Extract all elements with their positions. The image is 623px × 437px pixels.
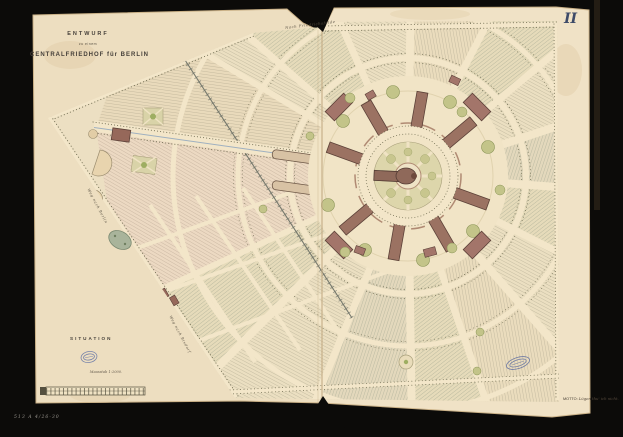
scale-caption: Maasstab 1:2000. bbox=[76, 371, 136, 375]
motto-line: MOTTO: Lügen thu' ich nicht. bbox=[563, 397, 619, 401]
title-line-2: zu einem bbox=[38, 43, 138, 47]
title-line-1: ENTWURF bbox=[38, 31, 138, 37]
plate-number: II bbox=[564, 12, 577, 27]
archive-mark: 513 A 4/26-30 bbox=[14, 415, 60, 420]
central-complex bbox=[308, 76, 508, 276]
title-line-3: CENTRALFRIEDHOF für BERLIN bbox=[30, 52, 146, 59]
scale-bar bbox=[40, 387, 145, 395]
motto-text: Lügen thu' ich nicht. bbox=[579, 396, 619, 401]
motto-label: MOTTO: bbox=[563, 397, 578, 401]
right-edge-sliver bbox=[594, 0, 600, 210]
situation-label: SITUATION bbox=[70, 336, 112, 341]
scanned-plan-sheet: ENTWURF zu einem CENTRALFRIEDHOF für BER… bbox=[0, 0, 623, 437]
parterre-garden bbox=[143, 108, 163, 125]
parterre-garden bbox=[131, 155, 157, 174]
